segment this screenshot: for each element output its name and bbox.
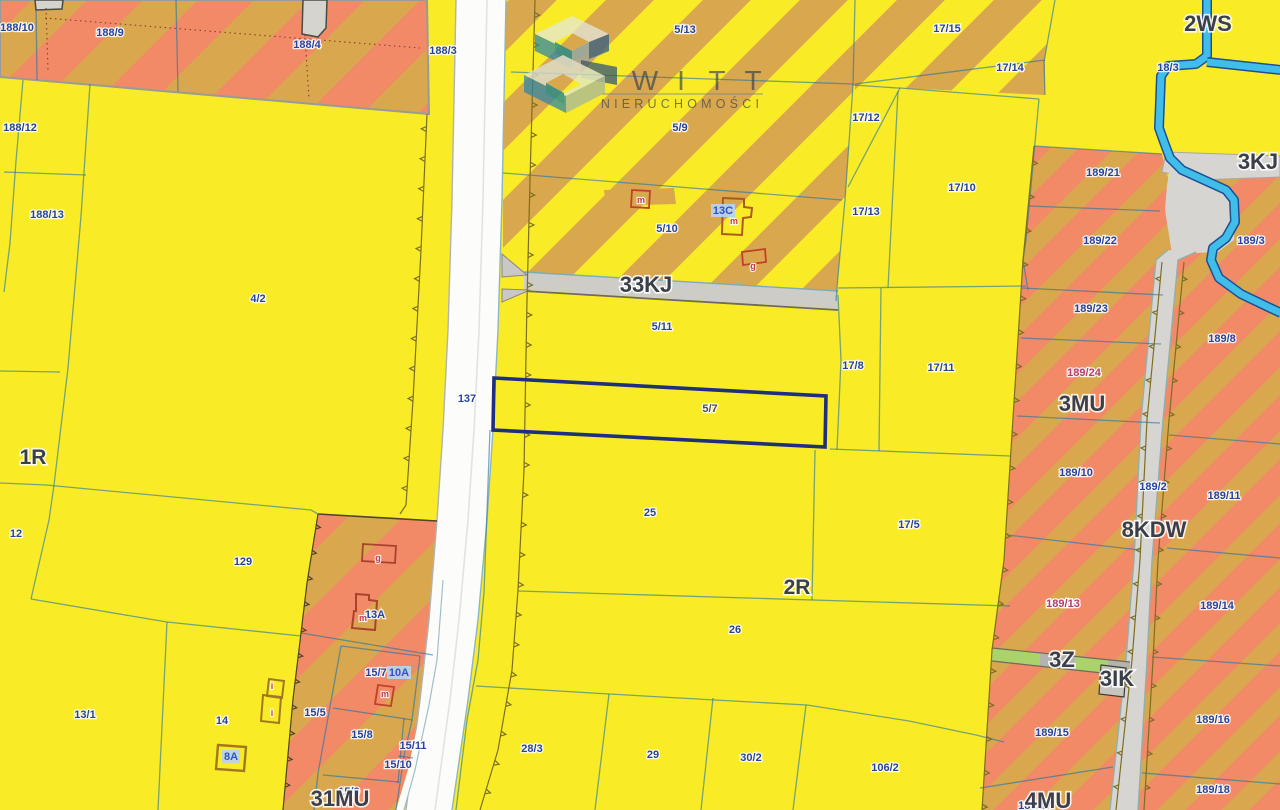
svg-text:T: T xyxy=(708,65,725,96)
svg-text:5/11: 5/11 xyxy=(652,321,673,333)
svg-text:5/9: 5/9 xyxy=(672,122,687,134)
svg-text:17/5: 17/5 xyxy=(898,519,919,531)
svg-text:189/14: 189/14 xyxy=(1200,600,1235,612)
svg-text:17/11: 17/11 xyxy=(928,362,955,374)
svg-text:189/22: 189/22 xyxy=(1083,235,1117,247)
svg-text:188/3: 188/3 xyxy=(429,45,457,57)
svg-text:10A: 10A xyxy=(389,667,409,679)
svg-text:17/14: 17/14 xyxy=(996,62,1024,74)
svg-text:188/12: 188/12 xyxy=(3,122,37,134)
svg-text:26: 26 xyxy=(729,624,741,636)
svg-text:15/10: 15/10 xyxy=(384,759,412,771)
svg-text:137: 137 xyxy=(458,393,476,405)
svg-text:3Z: 3Z xyxy=(1049,647,1075,672)
svg-text:5/10: 5/10 xyxy=(656,223,677,235)
svg-text:189/13: 189/13 xyxy=(1046,598,1080,610)
svg-text:189/8: 189/8 xyxy=(1208,333,1236,345)
svg-text:188/13: 188/13 xyxy=(30,209,64,221)
svg-text:12: 12 xyxy=(10,528,22,540)
svg-text:15/5: 15/5 xyxy=(304,707,325,719)
svg-text:3IK: 3IK xyxy=(1100,666,1134,691)
svg-text:189/24: 189/24 xyxy=(1067,367,1102,379)
svg-text:m: m xyxy=(381,689,389,699)
svg-text:3KJ: 3KJ xyxy=(1238,149,1278,174)
svg-text:i: i xyxy=(271,708,274,718)
svg-text:13A: 13A xyxy=(365,609,385,621)
svg-text:25: 25 xyxy=(644,507,656,519)
svg-text:18/3: 18/3 xyxy=(1157,62,1178,74)
svg-text:17/10: 17/10 xyxy=(948,182,976,194)
svg-text:28/3: 28/3 xyxy=(521,743,542,755)
svg-text:15/8: 15/8 xyxy=(351,729,372,741)
svg-text:m: m xyxy=(359,613,367,623)
svg-text:129: 129 xyxy=(234,556,252,568)
svg-text:g: g xyxy=(375,553,381,563)
svg-text:33KJ: 33KJ xyxy=(620,272,673,297)
svg-text:W: W xyxy=(632,65,659,96)
svg-text:189/16: 189/16 xyxy=(1196,714,1230,726)
svg-text:15/7: 15/7 xyxy=(365,667,386,679)
svg-text:106/2: 106/2 xyxy=(871,762,899,774)
svg-text:17/15: 17/15 xyxy=(933,23,961,35)
svg-text:NIERUCHOMOŚCI: NIERUCHOMOŚCI xyxy=(601,96,763,111)
svg-text:17/13: 17/13 xyxy=(852,206,880,218)
svg-text:189/11: 189/11 xyxy=(1207,490,1240,502)
svg-text:189/15: 189/15 xyxy=(1035,727,1069,739)
svg-text:31MU: 31MU xyxy=(311,786,370,810)
svg-text:5/7: 5/7 xyxy=(702,403,717,415)
svg-text:30/2: 30/2 xyxy=(740,752,761,764)
svg-text:15/11: 15/11 xyxy=(400,740,427,752)
svg-text:3MU: 3MU xyxy=(1059,391,1105,416)
svg-text:189/2: 189/2 xyxy=(1139,481,1167,493)
svg-text:2WS: 2WS xyxy=(1184,11,1232,36)
svg-text:m: m xyxy=(730,216,738,226)
svg-text:i: i xyxy=(271,681,274,691)
svg-text:1R: 1R xyxy=(20,446,47,469)
svg-text:189/18: 189/18 xyxy=(1196,784,1230,796)
svg-text:188/4: 188/4 xyxy=(293,39,321,51)
svg-text:188/10: 188/10 xyxy=(0,22,34,34)
svg-text:m: m xyxy=(637,195,645,205)
svg-text:189/10: 189/10 xyxy=(1059,467,1093,479)
svg-text:14: 14 xyxy=(216,715,229,727)
svg-text:4/2: 4/2 xyxy=(250,293,265,305)
svg-text:8A: 8A xyxy=(224,751,238,763)
svg-text:29: 29 xyxy=(647,749,659,761)
svg-text:13/1: 13/1 xyxy=(74,709,95,721)
svg-text:189/21: 189/21 xyxy=(1086,167,1120,179)
svg-text:2R: 2R xyxy=(784,576,811,599)
svg-text:17/8: 17/8 xyxy=(842,360,863,372)
svg-text:8KDW: 8KDW xyxy=(1122,517,1187,542)
svg-text:g: g xyxy=(750,261,756,271)
svg-text:5/13: 5/13 xyxy=(674,24,695,36)
svg-text:189/23: 189/23 xyxy=(1074,303,1108,315)
svg-text:188/9: 188/9 xyxy=(96,27,124,39)
svg-text:189/3: 189/3 xyxy=(1237,235,1265,247)
svg-text:17/12: 17/12 xyxy=(852,112,880,124)
svg-text:T: T xyxy=(744,65,761,96)
svg-text:I: I xyxy=(677,65,685,96)
svg-text:4MU: 4MU xyxy=(1025,788,1071,810)
